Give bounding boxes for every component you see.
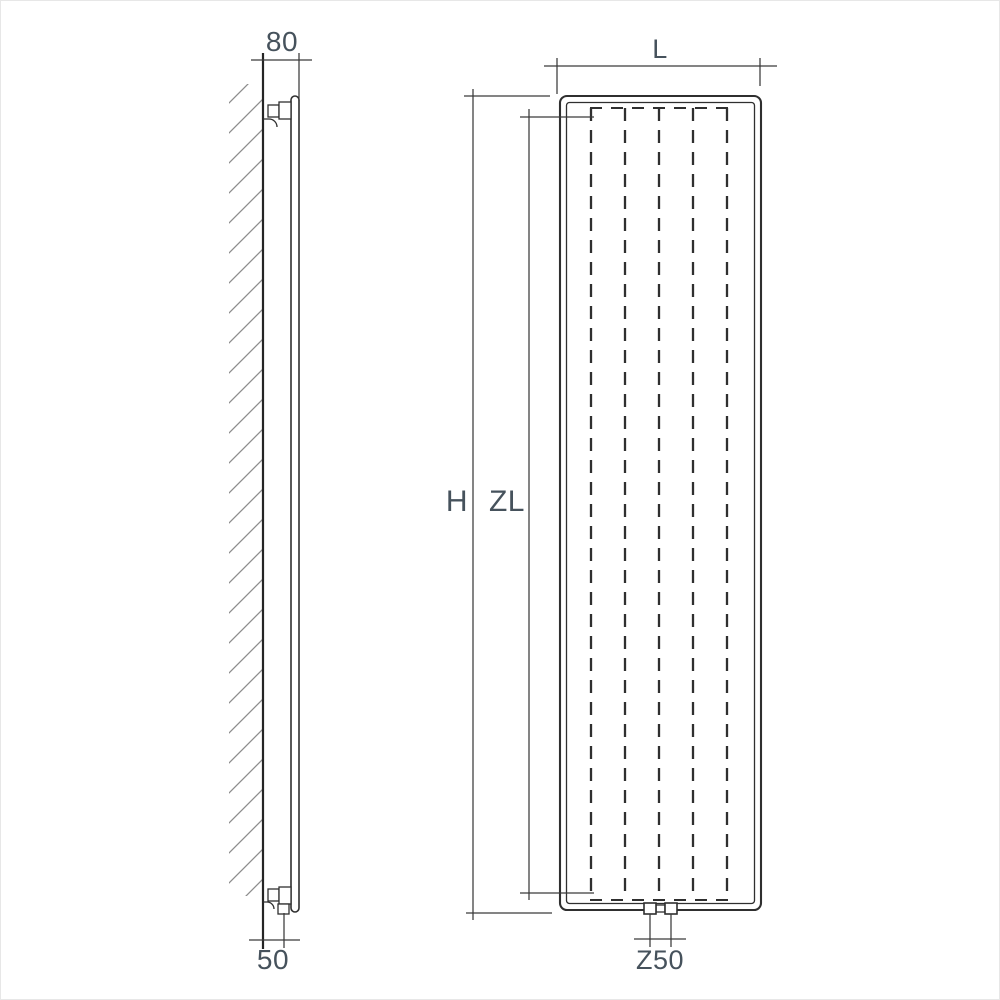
side-view: 80 50	[229, 26, 312, 975]
top-bracket-head	[279, 102, 291, 119]
wall-hatch	[229, 84, 263, 896]
radiator-dimension-diagram: 80 50	[1, 1, 999, 999]
bottom-bracket-hook	[263, 902, 274, 909]
top-bracket-body	[268, 105, 279, 117]
dim-ZL-label: ZL	[489, 485, 525, 518]
dim-80-label: 80	[266, 26, 298, 57]
dim-L-label: L	[652, 34, 668, 64]
connection-link	[656, 905, 665, 912]
connection-right	[665, 903, 677, 914]
dimension-Z50: Z50	[634, 914, 686, 975]
dim-H-label: H	[446, 485, 468, 518]
dimension-50: 50	[249, 913, 300, 975]
radiator-panel-side	[291, 96, 299, 912]
bottom-bracket-body	[268, 889, 279, 901]
connection-left	[644, 903, 656, 914]
bottom-bracket	[263, 887, 291, 914]
top-bracket-hook	[263, 119, 277, 127]
dim-Z50-label: Z50	[636, 945, 684, 975]
dimension-L: L	[544, 34, 777, 94]
bottom-bracket-head	[279, 887, 291, 904]
dim-50-label: 50	[257, 944, 289, 975]
bottom-connections	[644, 903, 677, 914]
top-bracket	[263, 102, 291, 127]
front-view: L H ZL Z50	[446, 34, 777, 975]
bottom-valve-side	[278, 904, 289, 914]
drawing-canvas: 80 50	[0, 0, 1000, 1000]
